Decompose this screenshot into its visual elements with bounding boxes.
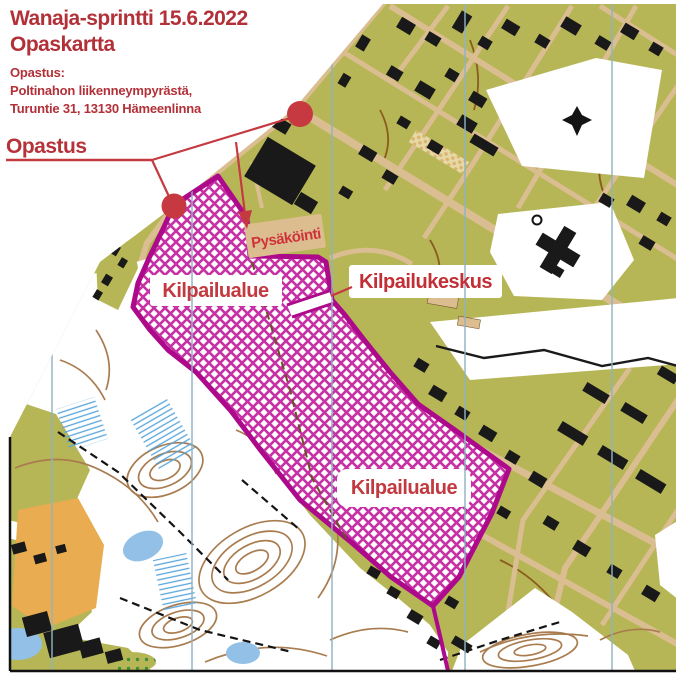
directions-line1: Poltinahon liikenneympyrästä, — [10, 82, 192, 100]
directions-heading: Opastus: — [10, 64, 65, 82]
opastus-callout: Opastus — [6, 135, 87, 159]
competition-area-label-lower: Kilpailualue — [337, 477, 471, 500]
competition-area-label-upper: Kilpailualue — [149, 280, 282, 303]
guide-dot-lower — [162, 194, 187, 219]
tower-symbol-icon — [533, 216, 542, 225]
event-center-label: Kilpailukeskus — [349, 271, 502, 294]
guide-dot-upper — [287, 101, 313, 127]
directions-line2: Turuntie 31, 13130 Hämeenlinna — [10, 100, 201, 118]
map-title-line2: Opaskartta — [10, 32, 115, 58]
map-title-line1: Wanaja-sprintti 15.6.2022 — [10, 6, 248, 32]
opaskartta-page: Wanaja-sprintti 15.6.2022 Opaskartta Opa… — [0, 0, 679, 679]
